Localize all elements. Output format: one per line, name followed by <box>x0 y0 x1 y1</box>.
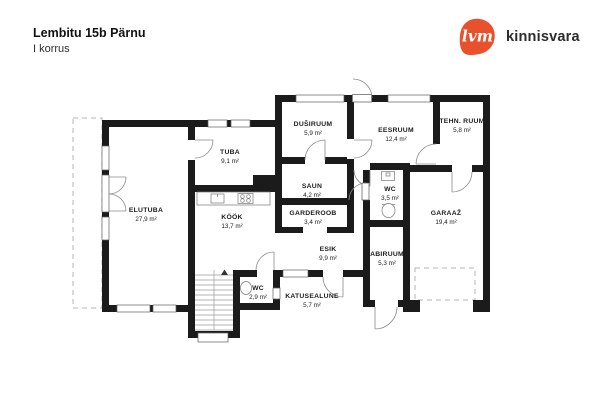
svg-text:4,2 m²: 4,2 m² <box>303 192 321 199</box>
svg-text:GARDEROOB: GARDEROOB <box>289 210 336 217</box>
svg-text:KATUSEALUNE: KATUSEALUNE <box>285 293 339 300</box>
svg-text:ESIK: ESIK <box>320 246 337 253</box>
svg-text:WC: WC <box>252 285 264 292</box>
room-label-dusiruum: DUŠIRUUM 5,9 m² <box>294 119 333 137</box>
room-label-wc-35: WC 3,5 m² <box>381 186 399 202</box>
floor-plan-page: Lembitu 15b Pärnu I korrus lvm kinnisvar… <box>0 0 600 400</box>
svg-text:2,9 m²: 2,9 m² <box>249 294 267 301</box>
svg-text:SAUN: SAUN <box>302 183 322 190</box>
svg-text:3,5 m²: 3,5 m² <box>381 195 399 202</box>
room-label-abiruum: ABIRUUM 5,3 m² <box>370 251 404 267</box>
room-label-garaaz: GARAAŽ 19,4 m² <box>431 208 462 226</box>
svg-text:9,9 m²: 9,9 m² <box>319 255 337 262</box>
wc-door-leaf <box>362 183 369 200</box>
svg-text:ELUTUBA: ELUTUBA <box>129 207 163 214</box>
kitchen-counter <box>197 192 270 205</box>
floor-plan: ELUTUBA 27,9 m² TUBA 9,1 m² KÖÖK 13,7 m²… <box>0 0 600 400</box>
svg-text:3,4 m²: 3,4 m² <box>304 219 322 226</box>
room-label-eesruum: EESRUUM 12,4 m² <box>378 127 414 143</box>
svg-text:KÖÖK: KÖÖK <box>221 212 242 221</box>
room-label-tuba: TUBA 9,1 m² <box>220 149 240 165</box>
room-label-katusealune: KATUSEALUNE 5,7 m² <box>285 293 339 309</box>
entrance-door-leaf <box>353 95 372 103</box>
svg-text:12,4 m²: 12,4 m² <box>385 136 406 143</box>
svg-text:27,9 m²: 27,9 m² <box>135 216 156 223</box>
small-wc-sink <box>241 282 252 295</box>
svg-text:ABIRUUM: ABIRUUM <box>370 251 404 258</box>
svg-text:GARAAŽ: GARAAŽ <box>431 208 462 217</box>
svg-text:19,4 m²: 19,4 m² <box>435 219 456 226</box>
svg-text:13,7 m²: 13,7 m² <box>221 223 242 230</box>
svg-text:5,9 m²: 5,9 m² <box>304 130 322 137</box>
wc-sink <box>382 204 395 218</box>
svg-text:9,1 m²: 9,1 m² <box>221 158 239 165</box>
svg-text:5,7 m²: 5,7 m² <box>303 302 321 309</box>
room-label-tehn-ruum: TEHN. RUUM 5,8 m² <box>439 118 484 134</box>
svg-text:TUBA: TUBA <box>220 149 240 156</box>
svg-text:TEHN. RUUM: TEHN. RUUM <box>439 118 484 125</box>
kitchen-stove <box>238 194 253 204</box>
room-label-saun: SAUN 4,2 m² <box>302 183 322 199</box>
room-label-esik: ESIK 9,9 m² <box>319 246 337 262</box>
stair-direction-arrow <box>221 270 228 276</box>
staircase <box>195 270 233 331</box>
svg-text:EESRUUM: EESRUUM <box>378 127 414 134</box>
svg-text:5,3 m²: 5,3 m² <box>378 260 396 267</box>
room-label-kook: KÖÖK 13,7 m² <box>221 212 242 230</box>
room-label-garderoob: GARDEROOB 3,4 m² <box>289 210 336 226</box>
room-label-elutuba: ELUTUBA 27,9 m² <box>129 207 163 223</box>
garage-door-outline <box>415 268 475 300</box>
svg-text:DUŠIRUUM: DUŠIRUUM <box>294 119 333 128</box>
svg-text:WC: WC <box>384 186 396 193</box>
room-labels: ELUTUBA 27,9 m² TUBA 9,1 m² KÖÖK 13,7 m²… <box>129 118 485 309</box>
terrace-outline <box>73 118 102 308</box>
room-label-wc-29: WC 2,9 m² <box>249 285 267 301</box>
svg-text:5,8 m²: 5,8 m² <box>453 127 471 134</box>
